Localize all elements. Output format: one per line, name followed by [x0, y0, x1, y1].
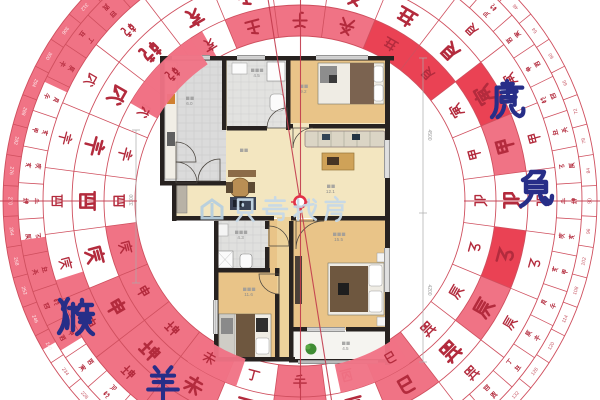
svg-text:9.2: 9.2: [300, 89, 307, 94]
svg-text:96: 96: [586, 228, 593, 234]
svg-text:6.0: 6.0: [186, 101, 193, 106]
svg-text:4500: 4500: [426, 129, 432, 140]
svg-text:11.6: 11.6: [244, 292, 253, 297]
svg-text:276: 276: [8, 166, 15, 175]
svg-text:264: 264: [8, 227, 15, 236]
svg-text:3300: 3300: [129, 194, 135, 205]
svg-text:12.1: 12.1: [326, 189, 335, 194]
svg-text:84: 84: [586, 167, 593, 173]
svg-text:4.3: 4.3: [237, 235, 244, 240]
svg-text:15.5: 15.5: [334, 237, 343, 242]
svg-text:4.5: 4.5: [253, 73, 260, 78]
svg-text:4200: 4200: [426, 284, 432, 295]
svg-text:4.5: 4.5: [342, 346, 349, 351]
